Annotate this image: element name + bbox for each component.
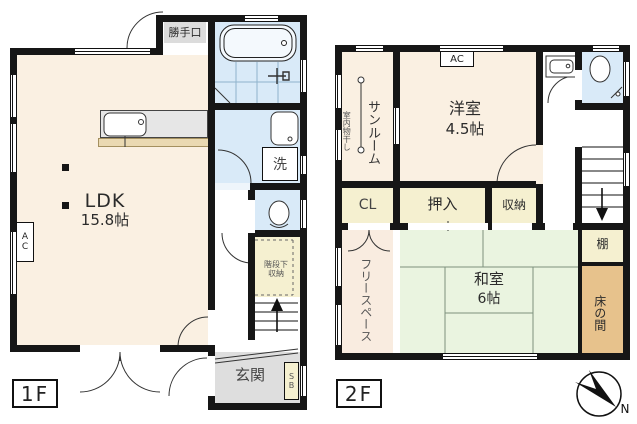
floor2-tag: 2F [336, 379, 382, 408]
window [623, 62, 630, 96]
genkan-label: 玄関 [222, 367, 278, 384]
wall [208, 15, 215, 410]
window [335, 75, 342, 108]
window [300, 156, 307, 174]
free-space-door-gap [348, 223, 390, 230]
shelf-label: 棚 [582, 238, 623, 252]
ldk-size-label: 15.8帖 [55, 212, 155, 229]
katteguchi-label: 勝手口 [164, 22, 206, 43]
window [335, 130, 342, 160]
ac-unit-1f: AC [16, 222, 34, 262]
wall [582, 262, 623, 266]
compass-north-label: N [617, 403, 633, 417]
window [300, 60, 307, 92]
closet-cl-label: CL [342, 197, 393, 213]
floor1-tag: 1F [12, 379, 58, 408]
window [10, 124, 17, 172]
sunroom-label: サンルーム [364, 72, 379, 192]
ldk-hall-door-gap [208, 310, 215, 345]
tokonoma-label: 床の間 [592, 278, 606, 348]
bath-floor [215, 22, 300, 103]
compass-needle [575, 370, 616, 407]
wall [156, 15, 307, 22]
wall [215, 103, 300, 110]
washroom-door-gap [215, 183, 250, 190]
floor-plan: 勝手口 LDK 15.8帖 AC 洗 階段下 収納 玄関 SB 1F サンルーム… [0, 0, 637, 424]
stairs-2f-down-arrow [596, 188, 608, 221]
french-door-left-arc [80, 352, 120, 392]
kitchen-counter-edge [98, 138, 210, 147]
kitchen-counter [100, 110, 208, 138]
storage-label: 収納 [492, 199, 536, 213]
free-space-fusuma-gap [393, 263, 400, 310]
window [10, 75, 17, 117]
sunroom-opening [393, 108, 400, 144]
stairs-1f-up-arrow [271, 298, 283, 332]
hall-japanese-room-gap [545, 223, 573, 230]
storage-dotted-gap [492, 223, 532, 230]
indoor-drying-label: 室内物干し [342, 92, 351, 170]
french-door-right-arc [120, 352, 160, 392]
washbasin2-icon [546, 56, 577, 77]
japanese-room-size-label: 6帖 [445, 291, 533, 307]
wall [248, 230, 300, 237]
entrance-door-arc [169, 358, 207, 396]
window [245, 15, 278, 22]
western-room-size-label: 4.5帖 [420, 121, 510, 138]
window [335, 305, 342, 345]
ldk-name-label: LDK [55, 191, 155, 213]
window [300, 366, 307, 396]
shoe-box: SB [284, 362, 299, 400]
washing-machine-box: 洗 [262, 147, 298, 181]
wall [575, 147, 582, 230]
compass-icon [575, 370, 621, 416]
toilet2-door-arc [548, 76, 575, 103]
under-stair-line2: 収納 [256, 269, 296, 278]
stairs-2f [582, 147, 623, 207]
western-room-door-gap [536, 145, 543, 184]
entrance-door-gap [208, 356, 215, 396]
japanese-room-fusuma-gap [408, 223, 488, 230]
toilet1-floor [252, 190, 300, 230]
under-stair-line1: 階段下 [256, 260, 296, 269]
window [593, 45, 619, 52]
window [356, 45, 383, 52]
window [300, 200, 307, 228]
toilet1-door-gap [248, 200, 255, 233]
french-door-gap [80, 345, 160, 352]
wall [575, 103, 630, 110]
under-stair-storage-label: 階段下 収納 [256, 260, 296, 278]
window [443, 353, 537, 360]
ac-unit-2f: AC [440, 51, 474, 67]
toilet2-door-gap [575, 70, 582, 100]
oshiire-label: 押入 [400, 196, 485, 213]
western-room-name-label: 洋室 [420, 100, 510, 118]
free-space-label: フリースペース [358, 247, 372, 353]
toilet2-floor [582, 52, 623, 103]
wall [208, 403, 307, 410]
window [75, 48, 150, 55]
japanese-room-name-label: 和室 [445, 271, 533, 288]
window [623, 153, 630, 186]
stairs-1f [255, 303, 298, 330]
window [335, 248, 342, 286]
